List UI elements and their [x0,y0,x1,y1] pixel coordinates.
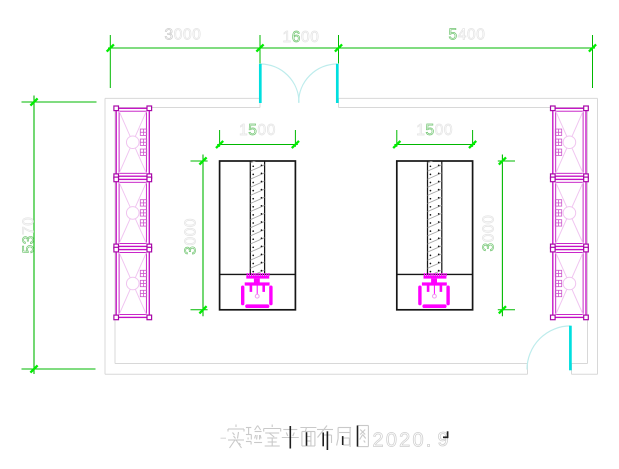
svg-text:3000: 3000 [183,218,200,255]
svg-text:1500: 1500 [416,122,453,139]
svg-text:2020.: 2020. [373,430,434,452]
svg-text:3000: 3000 [165,27,202,44]
svg-text:3000: 3000 [481,215,498,252]
svg-text:1500: 1500 [239,122,276,139]
svg-text:5370: 5370 [21,217,38,254]
svg-text:1600: 1600 [283,29,320,46]
svg-text:5400: 5400 [449,27,486,44]
